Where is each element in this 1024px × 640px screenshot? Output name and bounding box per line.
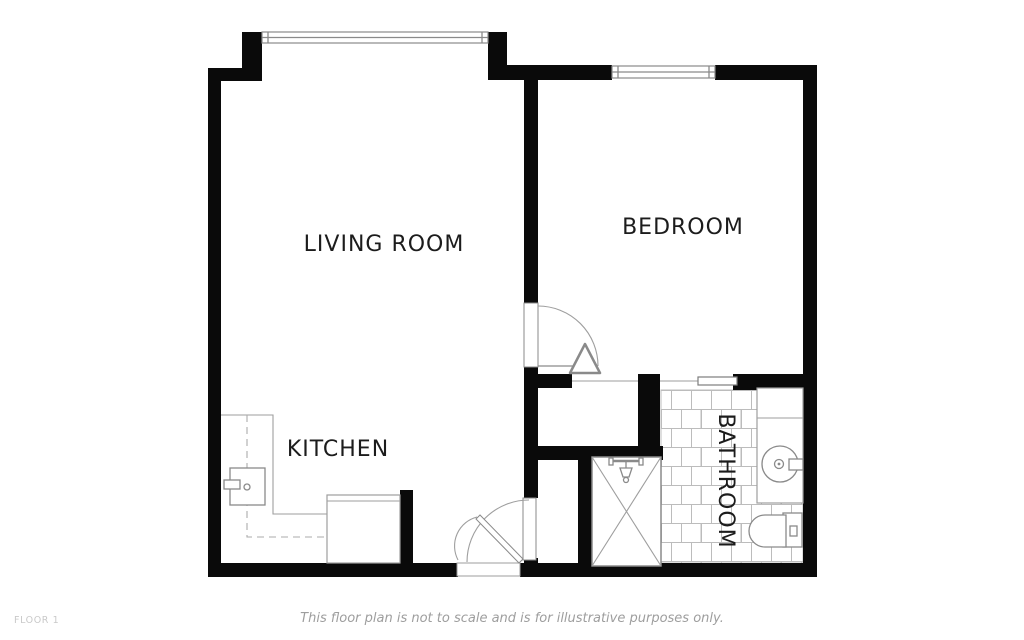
floor-plan-canvas: LIVING ROOM BEDROOM KITCHEN BATHROOM bbox=[0, 0, 1024, 640]
toilet-icon bbox=[749, 513, 802, 547]
bathroom-sliding-door bbox=[660, 377, 737, 385]
bathroom-label: BATHROOM bbox=[713, 413, 738, 548]
closet-bifold-door bbox=[570, 344, 638, 381]
entry-swing-door bbox=[455, 500, 529, 576]
kitchen-peninsula-counter bbox=[327, 495, 400, 563]
floor-plan-page: LIVING ROOM BEDROOM KITCHEN BATHROOM FLO… bbox=[0, 0, 1024, 640]
disclaimer-text: This floor plan is not to scale and is f… bbox=[0, 611, 1024, 626]
kitchen-label: KITCHEN bbox=[287, 437, 389, 462]
bedroom-window bbox=[612, 66, 715, 78]
living-room-bay-window bbox=[262, 32, 488, 43]
storage-door bbox=[523, 498, 536, 560]
bedroom-label: BEDROOM bbox=[622, 215, 744, 240]
living-room-label: LIVING ROOM bbox=[304, 232, 465, 257]
kitchen-sink-icon bbox=[224, 468, 265, 505]
